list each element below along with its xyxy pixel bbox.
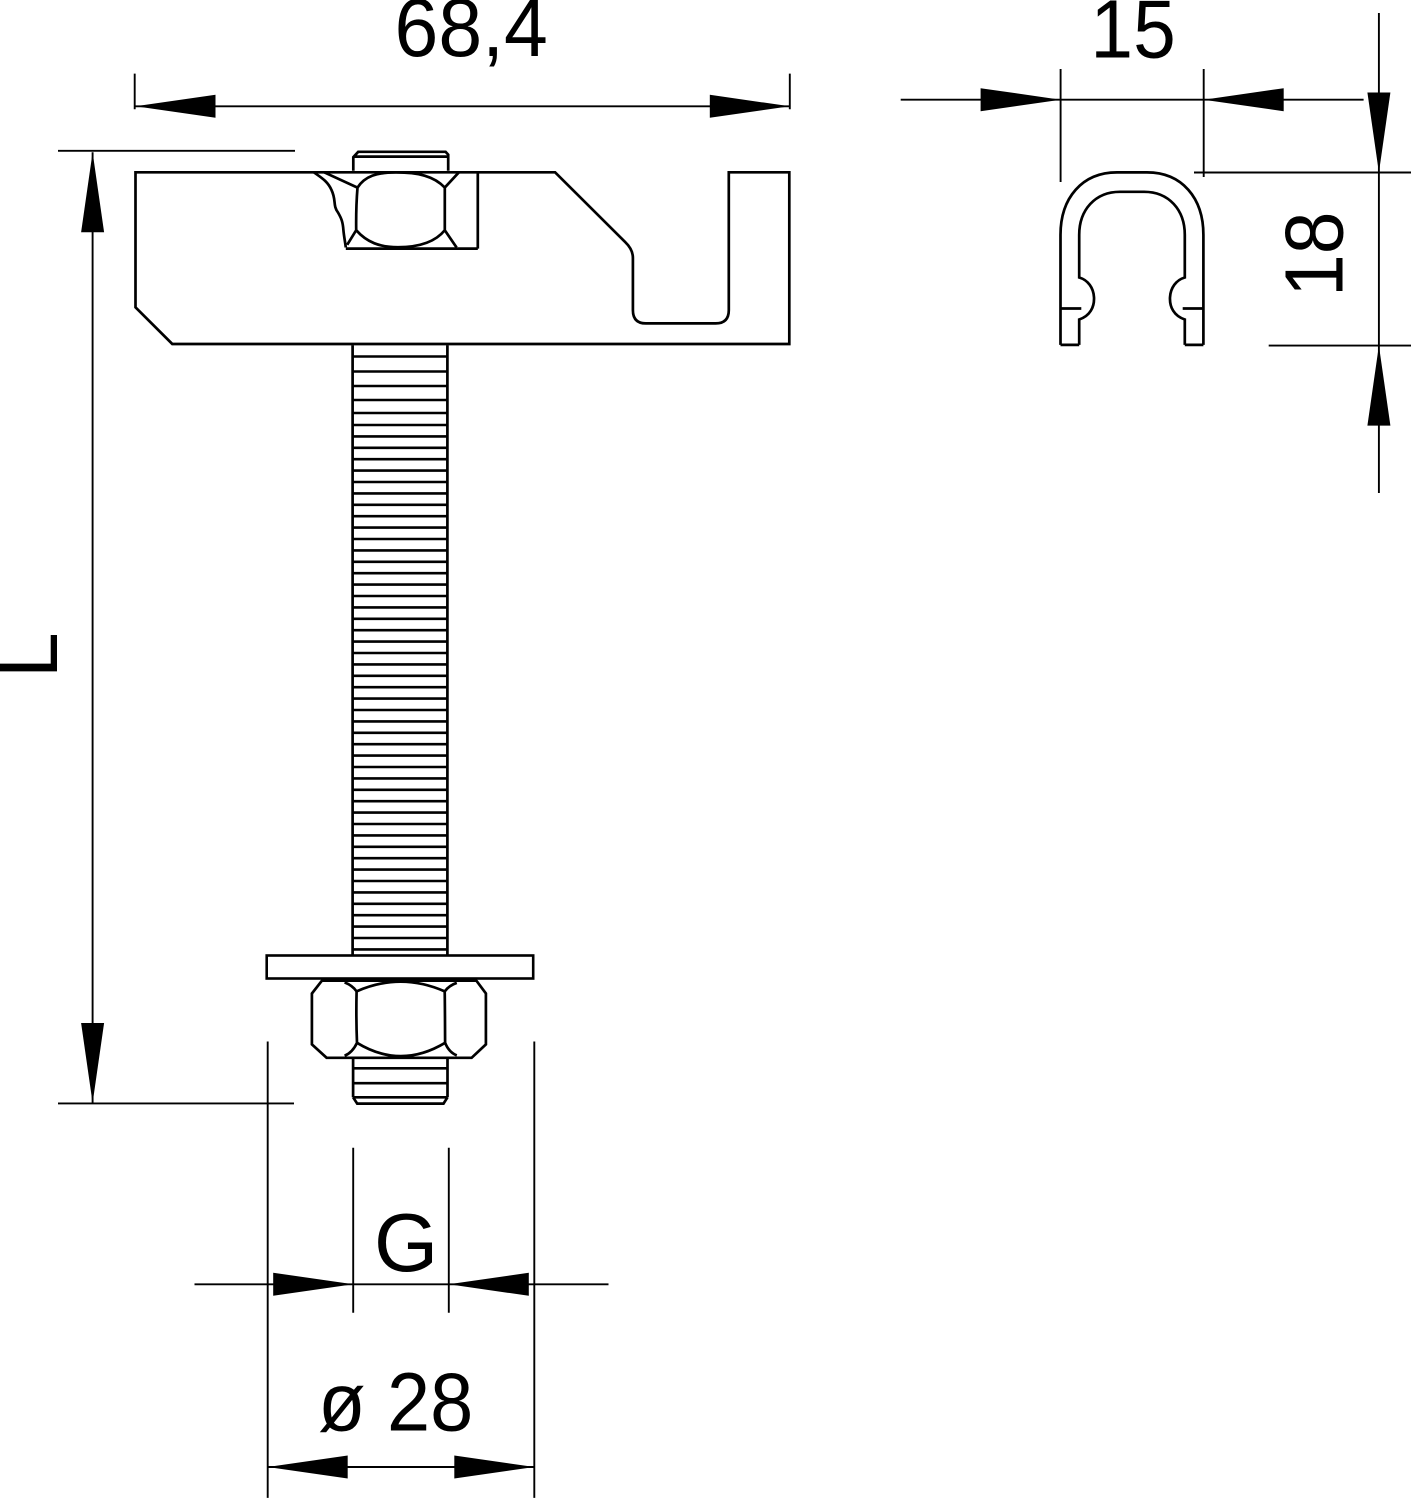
- svg-text:L: L: [0, 632, 75, 678]
- svg-text:18: 18: [1268, 212, 1360, 297]
- svg-text:ø 28: ø 28: [318, 1356, 473, 1448]
- svg-text:G: G: [374, 1197, 438, 1289]
- svg-text:68,4: 68,4: [395, 0, 548, 74]
- svg-text:15: 15: [1090, 0, 1175, 75]
